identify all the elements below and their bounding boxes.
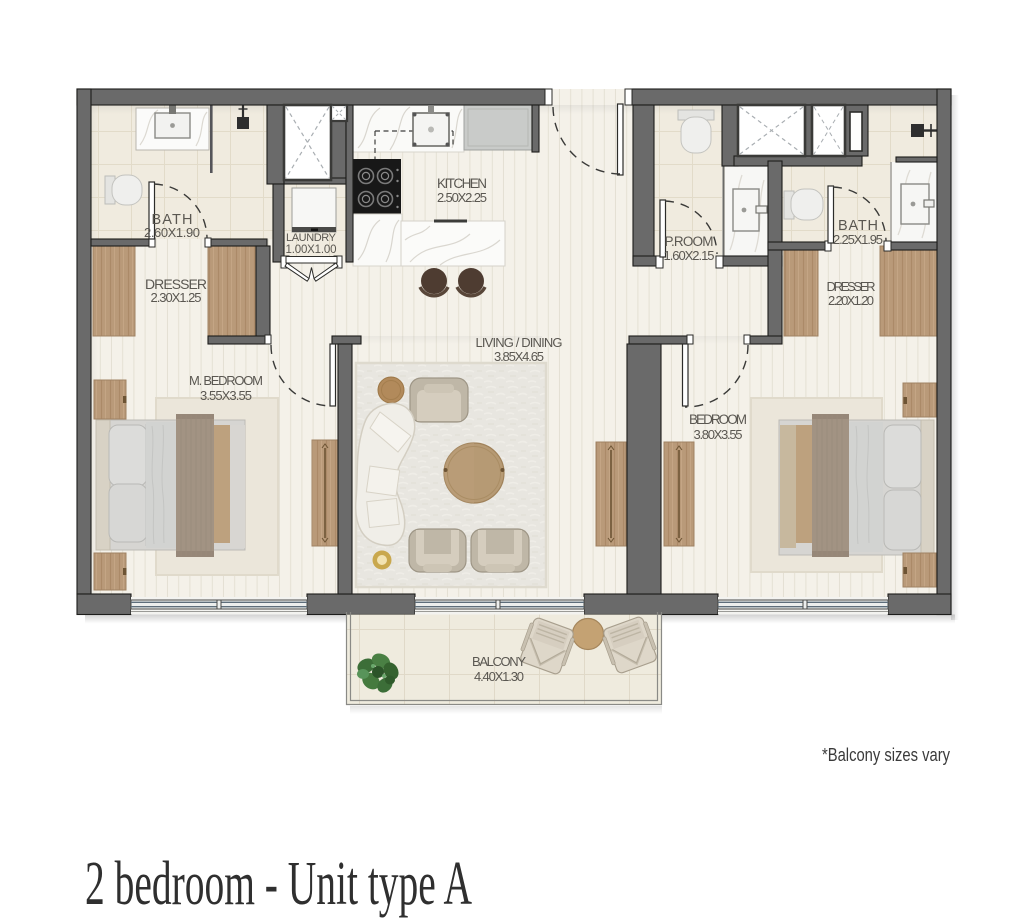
svg-text:2.50X2.25: 2.50X2.25: [437, 190, 487, 205]
svg-text:KITCHEN: KITCHEN: [437, 176, 487, 191]
svg-text:DRESSER: DRESSER: [827, 279, 876, 294]
svg-text:BEDROOM: BEDROOM: [689, 412, 747, 427]
svg-text:1.00X1.00: 1.00X1.00: [286, 244, 337, 256]
svg-text:3.55X3.55: 3.55X3.55: [200, 388, 252, 403]
svg-text:3.80X3.55: 3.80X3.55: [694, 427, 743, 442]
svg-text:BALCONY: BALCONY: [472, 654, 526, 669]
svg-text:4.40X1.30: 4.40X1.30: [474, 669, 524, 684]
svg-text:3.85X4.65: 3.85X4.65: [494, 349, 544, 364]
svg-text:2.20X1.20: 2.20X1.20: [828, 293, 874, 308]
svg-text:2.25X1.95: 2.25X1.95: [833, 232, 883, 247]
svg-text:LAUNDRY: LAUNDRY: [286, 232, 337, 244]
svg-text:LIVING / DINING: LIVING / DINING: [476, 335, 563, 350]
svg-text:*Balcony sizes vary: *Balcony sizes vary: [822, 745, 950, 765]
svg-text:2.60X1.90: 2.60X1.90: [144, 225, 200, 240]
svg-text:2 bedroom - Unit type A: 2 bedroom - Unit type A: [85, 850, 472, 918]
svg-text:M. BEDROOM: M. BEDROOM: [189, 373, 263, 388]
svg-text:2.30X1.25: 2.30X1.25: [151, 290, 202, 305]
svg-text:P.ROOM: P.ROOM: [665, 234, 714, 249]
svg-text:1.60X2.15: 1.60X2.15: [664, 248, 715, 263]
